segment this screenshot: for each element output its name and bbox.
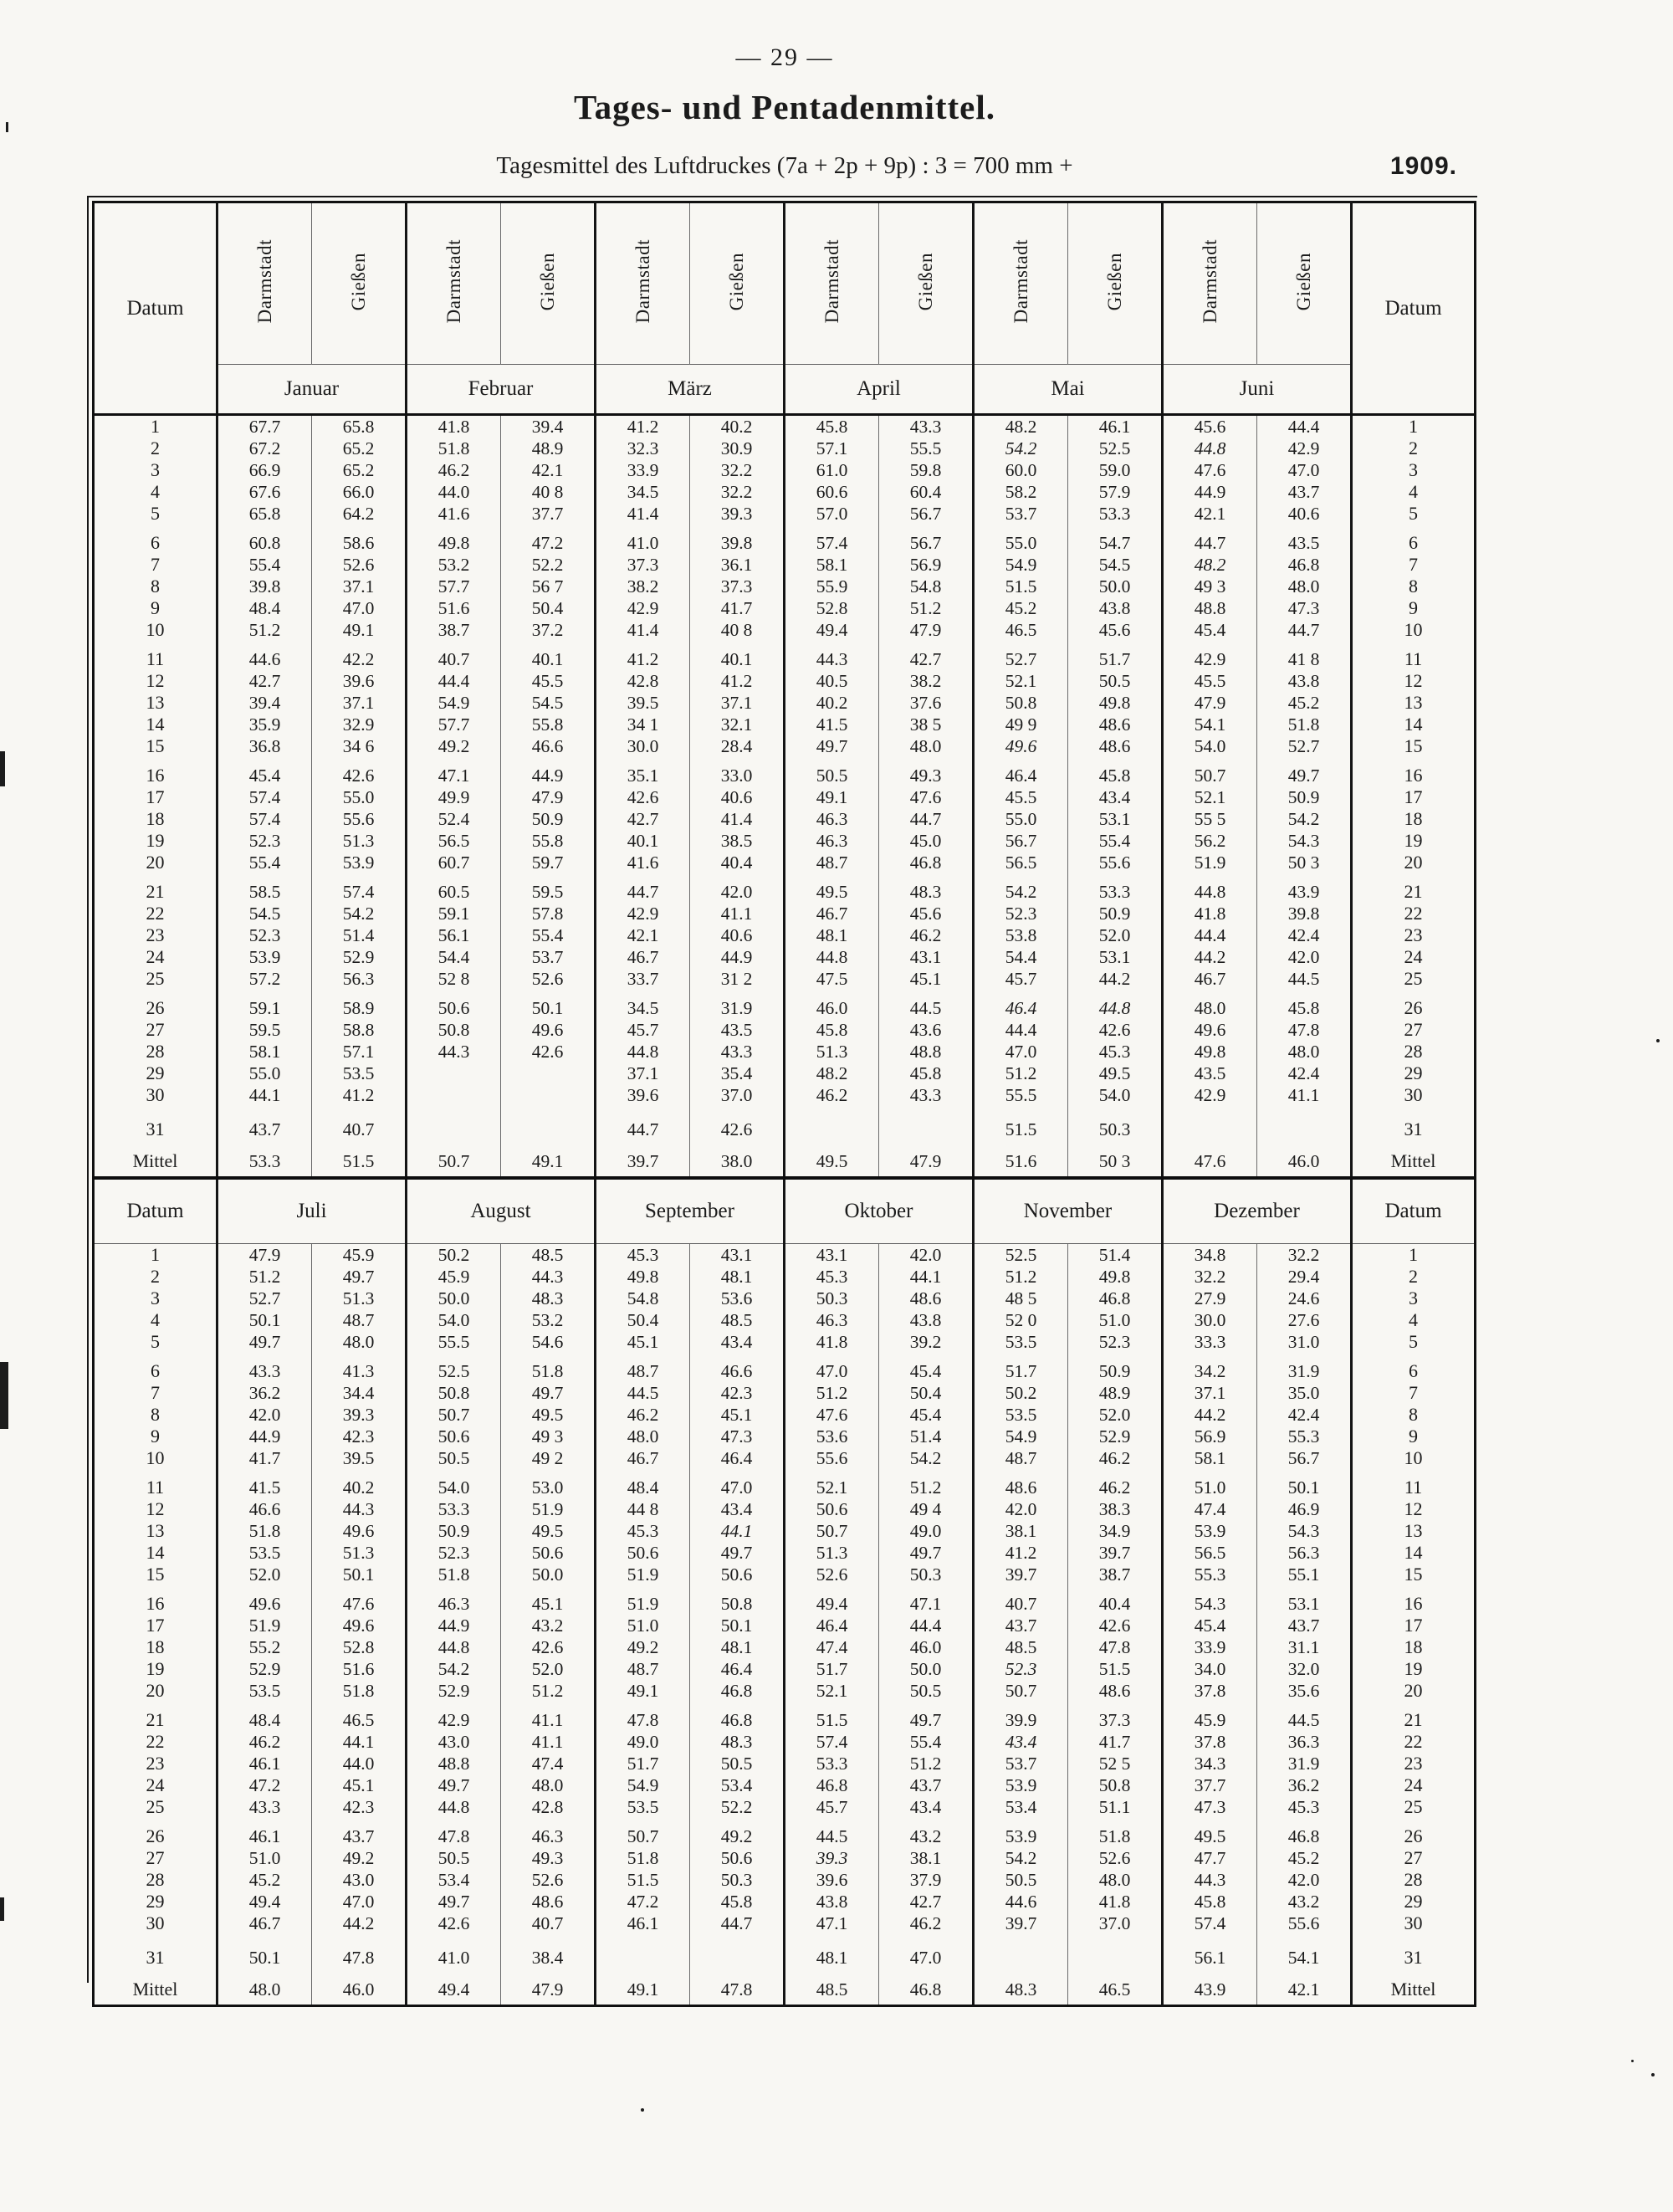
day-row: 1952.351.356.555.840.138.546.345.056.755… bbox=[94, 830, 1476, 852]
value-cell: 43.0 bbox=[312, 1869, 407, 1891]
value-cell: 53.7 bbox=[974, 1753, 1068, 1774]
value-cell: 53.6 bbox=[785, 1426, 879, 1447]
value-cell: 48.8 bbox=[1163, 597, 1257, 619]
value-cell: 39.5 bbox=[596, 692, 690, 714]
value-cell: 48.7 bbox=[974, 1447, 1068, 1469]
value-cell: 41.5 bbox=[785, 714, 879, 735]
value-cell: 49.5 bbox=[785, 1140, 879, 1178]
day-cell: 25 bbox=[1352, 1796, 1476, 1818]
value-cell: 44.8 bbox=[596, 1041, 690, 1062]
day-cell: 21 bbox=[1352, 1702, 1476, 1731]
value-cell: 42.0 bbox=[974, 1498, 1068, 1520]
value-cell: 47.6 bbox=[1163, 1140, 1257, 1178]
value-cell: 52.2 bbox=[501, 554, 596, 576]
month-header-dezember: Dezember bbox=[1163, 1178, 1352, 1244]
value-cell: 43.8 bbox=[879, 1309, 974, 1331]
value-cell: 48.4 bbox=[596, 1469, 690, 1498]
day-cell: 28 bbox=[1352, 1869, 1476, 1891]
value-cell: 54.6 bbox=[501, 1331, 596, 1353]
day-cell: 6 bbox=[94, 525, 217, 554]
value-cell: 37.8 bbox=[1163, 1731, 1257, 1753]
day-cell: 31 bbox=[94, 1934, 217, 1969]
month-header-juni: Juni bbox=[1163, 365, 1352, 415]
value-cell: 52.8 bbox=[785, 597, 879, 619]
value-cell: 40.7 bbox=[407, 641, 501, 670]
value-cell: 46.8 bbox=[879, 852, 974, 873]
value-cell: 43.1 bbox=[879, 946, 974, 968]
value-cell: 44.3 bbox=[407, 1041, 501, 1062]
value-cell: 44.9 bbox=[217, 1426, 312, 1447]
day-cell: Mittel bbox=[94, 1969, 217, 2006]
station-header-giessen: Gießen bbox=[312, 202, 407, 365]
day-cell: 20 bbox=[1352, 1680, 1476, 1702]
value-cell: 52.9 bbox=[1068, 1426, 1163, 1447]
value-cell: 32.0 bbox=[1257, 1658, 1352, 1680]
value-cell: 48.6 bbox=[879, 1288, 974, 1309]
value-cell: 39.2 bbox=[879, 1331, 974, 1353]
value-cell: 53.1 bbox=[1068, 946, 1163, 968]
value-cell: 51.2 bbox=[879, 597, 974, 619]
value-cell: 33.3 bbox=[1163, 1331, 1257, 1353]
day-row: 2453.952.954.453.746.744.944.843.154.453… bbox=[94, 946, 1476, 968]
value-cell: 59.7 bbox=[501, 852, 596, 873]
value-cell: 44.2 bbox=[1163, 1404, 1257, 1426]
value-cell: 40.2 bbox=[690, 415, 785, 438]
day-row: 1649.647.646.345.151.950.849.447.140.740… bbox=[94, 1585, 1476, 1615]
day-row: 2447.245.149.748.054.953.446.843.753.950… bbox=[94, 1774, 1476, 1796]
day-row: 755.452.653.252.237.336.158.156.954.954.… bbox=[94, 554, 1476, 576]
day-row: 2858.157.144.342.644.843.351.348.847.045… bbox=[94, 1041, 1476, 1062]
value-cell: 32.9 bbox=[312, 714, 407, 735]
value-cell: 42.1 bbox=[501, 459, 596, 481]
value-cell: 59.8 bbox=[879, 459, 974, 481]
second-half-year-body: 147.945.950.248.545.343.143.142.052.551.… bbox=[94, 1244, 1476, 2006]
value-cell: 49.2 bbox=[596, 1636, 690, 1658]
value-cell: 32.3 bbox=[596, 438, 690, 459]
value-cell: 45.3 bbox=[1068, 1041, 1163, 1062]
value-cell: 47.7 bbox=[1163, 1847, 1257, 1869]
value-cell: 51.8 bbox=[217, 1520, 312, 1542]
value-cell: 46.7 bbox=[217, 1912, 312, 1934]
value-cell: 48.1 bbox=[690, 1266, 785, 1288]
day-cell: 15 bbox=[94, 735, 217, 757]
value-cell: 48.7 bbox=[785, 852, 879, 873]
value-cell bbox=[1163, 1106, 1257, 1140]
value-cell: 46.8 bbox=[1068, 1288, 1163, 1309]
value-cell: 49.7 bbox=[407, 1774, 501, 1796]
day-row: 1751.949.644.943.251.050.146.444.443.742… bbox=[94, 1615, 1476, 1636]
value-cell: 42.8 bbox=[596, 670, 690, 692]
value-cell: 36.2 bbox=[217, 1382, 312, 1404]
mid-header: Datum Juli August September Oktober Nove… bbox=[94, 1178, 1476, 1244]
value-cell: 39.7 bbox=[596, 1140, 690, 1178]
value-cell: 57.7 bbox=[407, 576, 501, 597]
value-cell: 51.8 bbox=[407, 1564, 501, 1585]
value-cell: 48.9 bbox=[501, 438, 596, 459]
value-cell: 47.5 bbox=[785, 968, 879, 990]
value-cell: 51.2 bbox=[217, 619, 312, 641]
value-cell: 55.8 bbox=[501, 830, 596, 852]
value-cell: 52.3 bbox=[974, 903, 1068, 924]
value-cell: 49.7 bbox=[690, 1542, 785, 1564]
value-cell: 55.4 bbox=[1068, 830, 1163, 852]
day-cell: 14 bbox=[94, 714, 217, 735]
value-cell: 52.1 bbox=[785, 1469, 879, 1498]
value-cell: 46.7 bbox=[1163, 968, 1257, 990]
day-cell: Mittel bbox=[94, 1140, 217, 1178]
value-cell: 45.7 bbox=[596, 1019, 690, 1041]
station-header-giessen: Gießen bbox=[1068, 202, 1163, 365]
day-cell: 3 bbox=[1352, 459, 1476, 481]
value-cell: 47.4 bbox=[501, 1753, 596, 1774]
value-cell: 41.8 bbox=[1068, 1891, 1163, 1912]
value-cell: 50.6 bbox=[785, 1498, 879, 1520]
day-cell: 17 bbox=[94, 1615, 217, 1636]
value-cell: 52.9 bbox=[217, 1658, 312, 1680]
value-cell: 35.6 bbox=[1257, 1680, 1352, 1702]
day-row: 1855.252.844.842.649.248.147.446.048.547… bbox=[94, 1636, 1476, 1658]
value-cell: 41.7 bbox=[217, 1447, 312, 1469]
day-cell: 14 bbox=[1352, 714, 1476, 735]
month-header-januar: Januar bbox=[217, 365, 407, 415]
value-cell: 44.2 bbox=[1068, 968, 1163, 990]
value-cell: 44.6 bbox=[217, 641, 312, 670]
value-cell: 50.8 bbox=[974, 692, 1068, 714]
value-cell: 66.0 bbox=[312, 481, 407, 503]
first-half-year-body: 167.765.841.839.441.240.245.843.348.246.… bbox=[94, 415, 1476, 1179]
value-cell: 44.7 bbox=[879, 808, 974, 830]
value-cell: 50.7 bbox=[974, 1680, 1068, 1702]
value-cell: 54.0 bbox=[1068, 1084, 1163, 1106]
value-cell: 48.5 bbox=[974, 1636, 1068, 1658]
value-cell: 50.0 bbox=[879, 1658, 974, 1680]
value-cell: 41.8 bbox=[407, 415, 501, 438]
value-cell: 44 8 bbox=[596, 1498, 690, 1520]
value-cell: 51.8 bbox=[501, 1353, 596, 1382]
value-cell: 51.9 bbox=[217, 1615, 312, 1636]
day-cell: 21 bbox=[94, 1702, 217, 1731]
value-cell: 40 8 bbox=[501, 481, 596, 503]
value-cell: 47.3 bbox=[1257, 597, 1352, 619]
day-row: 2955.053.537.135.448.245.851.249.543.542… bbox=[94, 1062, 1476, 1084]
value-cell: 42.4 bbox=[1257, 1404, 1352, 1426]
value-cell: 55.6 bbox=[1257, 1912, 1352, 1934]
value-cell: 50.7 bbox=[407, 1140, 501, 1178]
value-cell: 42.3 bbox=[312, 1426, 407, 1447]
value-cell: 48.5 bbox=[501, 1244, 596, 1267]
day-cell: 9 bbox=[94, 1426, 217, 1447]
station-header-darmstadt: Darmstadt bbox=[1163, 202, 1257, 365]
value-cell: 54.9 bbox=[407, 692, 501, 714]
value-cell: 46.2 bbox=[879, 924, 974, 946]
value-cell: 49.5 bbox=[785, 873, 879, 903]
value-cell: 56.9 bbox=[879, 554, 974, 576]
day-row: 3150.147.841.038.448.147.056.154.131 bbox=[94, 1934, 1476, 1969]
month-header-april: April bbox=[785, 365, 974, 415]
value-cell: 64.2 bbox=[312, 503, 407, 525]
value-cell: 43.5 bbox=[1257, 525, 1352, 554]
value-cell: 50.9 bbox=[407, 1520, 501, 1542]
value-cell: 41.5 bbox=[217, 1469, 312, 1498]
value-cell: 40.4 bbox=[1068, 1585, 1163, 1615]
day-cell: 16 bbox=[1352, 1585, 1476, 1615]
value-cell: 34.0 bbox=[1163, 1658, 1257, 1680]
day-row: 2751.049.250.549.351.850.639.338.154.252… bbox=[94, 1847, 1476, 1869]
value-cell: 44.1 bbox=[879, 1266, 974, 1288]
value-cell: 55.4 bbox=[217, 554, 312, 576]
day-cell: 6 bbox=[1352, 525, 1476, 554]
value-cell: 59.1 bbox=[217, 990, 312, 1019]
day-cell: 3 bbox=[1352, 1288, 1476, 1309]
value-cell: 52.1 bbox=[1163, 786, 1257, 808]
value-cell: 49.3 bbox=[501, 1847, 596, 1869]
day-cell: 27 bbox=[1352, 1847, 1476, 1869]
value-cell: 52.5 bbox=[1068, 438, 1163, 459]
value-cell: 44.9 bbox=[501, 757, 596, 786]
value-cell: 50.9 bbox=[1068, 903, 1163, 924]
value-cell: 50.5 bbox=[1068, 670, 1163, 692]
value-cell: 48.3 bbox=[501, 1288, 596, 1309]
value-cell: 49.7 bbox=[1257, 757, 1352, 786]
outer-rule-left bbox=[87, 196, 89, 1983]
day-cell: 2 bbox=[94, 438, 217, 459]
value-cell: 52.3 bbox=[217, 924, 312, 946]
value-cell: 37.3 bbox=[1068, 1702, 1163, 1731]
day-cell: 7 bbox=[94, 1382, 217, 1404]
value-cell: 50.1 bbox=[690, 1615, 785, 1636]
day-cell: 30 bbox=[1352, 1084, 1476, 1106]
value-cell: 45.8 bbox=[879, 1062, 974, 1084]
value-cell: 53.4 bbox=[407, 1869, 501, 1891]
value-cell: 47.8 bbox=[407, 1818, 501, 1847]
value-cell: 34.8 bbox=[1163, 1244, 1257, 1267]
day-row: 2148.446.542.941.147.846.851.549.739.937… bbox=[94, 1702, 1476, 1731]
value-cell: 38.0 bbox=[690, 1140, 785, 1178]
value-cell: 51.7 bbox=[1068, 641, 1163, 670]
value-cell: 47.8 bbox=[312, 1934, 407, 1969]
value-cell: 53.5 bbox=[217, 1542, 312, 1564]
day-cell: 13 bbox=[1352, 1520, 1476, 1542]
day-cell: 26 bbox=[1352, 1818, 1476, 1847]
day-cell: 11 bbox=[1352, 1469, 1476, 1498]
value-cell: 51.9 bbox=[501, 1498, 596, 1520]
value-cell: 42.6 bbox=[1068, 1019, 1163, 1041]
value-cell: 54.0 bbox=[407, 1309, 501, 1331]
value-cell: 52.0 bbox=[1068, 924, 1163, 946]
value-cell: 48.2 bbox=[785, 1062, 879, 1084]
value-cell: 51.3 bbox=[312, 1542, 407, 1564]
value-cell: 40.2 bbox=[785, 692, 879, 714]
day-cell: 31 bbox=[1352, 1106, 1476, 1140]
value-cell: 40.1 bbox=[690, 641, 785, 670]
day-cell: 8 bbox=[94, 1404, 217, 1426]
value-cell: 39.4 bbox=[501, 415, 596, 438]
value-cell: 56.7 bbox=[1257, 1447, 1352, 1469]
day-cell: 18 bbox=[94, 1636, 217, 1658]
value-cell: 34.5 bbox=[596, 990, 690, 1019]
value-cell: 48 5 bbox=[974, 1288, 1068, 1309]
value-cell: 51.1 bbox=[1068, 1796, 1163, 1818]
value-cell: 43.7 bbox=[312, 1818, 407, 1847]
month-header-mai: Mai bbox=[974, 365, 1163, 415]
value-cell: 34.5 bbox=[596, 481, 690, 503]
value-cell: 42.6 bbox=[501, 1636, 596, 1658]
value-cell: 53.9 bbox=[217, 946, 312, 968]
value-cell bbox=[1068, 1934, 1163, 1969]
value-cell: 56.3 bbox=[1257, 1542, 1352, 1564]
value-cell: 41.8 bbox=[785, 1331, 879, 1353]
month-row-top: Januar Februar März April Mai Juni bbox=[94, 365, 1476, 415]
value-cell: 37.3 bbox=[596, 554, 690, 576]
value-cell: 65.2 bbox=[312, 438, 407, 459]
value-cell: 39.6 bbox=[312, 670, 407, 692]
value-cell: 45.5 bbox=[1163, 670, 1257, 692]
day-row: 2158.557.460.559.544.742.049.548.354.253… bbox=[94, 873, 1476, 903]
value-cell: 43.4 bbox=[974, 1731, 1068, 1753]
day-cell: 24 bbox=[1352, 1774, 1476, 1796]
station-header-darmstadt: Darmstadt bbox=[217, 202, 312, 365]
value-cell: 57.4 bbox=[312, 873, 407, 903]
value-cell: 49.8 bbox=[596, 1266, 690, 1288]
day-cell: 22 bbox=[1352, 1731, 1476, 1753]
value-cell: 46.8 bbox=[785, 1774, 879, 1796]
value-cell: 31 2 bbox=[690, 968, 785, 990]
value-cell: 54.8 bbox=[596, 1288, 690, 1309]
day-cell: 16 bbox=[1352, 757, 1476, 786]
value-cell: 42.9 bbox=[596, 597, 690, 619]
value-cell: 51.5 bbox=[312, 1140, 407, 1178]
value-cell: 43.6 bbox=[879, 1019, 974, 1041]
value-cell: 42.6 bbox=[312, 757, 407, 786]
value-cell: 32.2 bbox=[1163, 1266, 1257, 1288]
value-cell: 24.6 bbox=[1257, 1288, 1352, 1309]
value-cell: 45.9 bbox=[407, 1266, 501, 1288]
day-row: 1041.739.550.549 246.746.455.654.248.746… bbox=[94, 1447, 1476, 1469]
value-cell: 47.2 bbox=[596, 1891, 690, 1912]
day-cell: 5 bbox=[1352, 1331, 1476, 1353]
value-cell: 53.9 bbox=[312, 852, 407, 873]
day-row: 842.039.350.749.546.245.147.645.453.552.… bbox=[94, 1404, 1476, 1426]
value-cell: 55.5 bbox=[407, 1331, 501, 1353]
value-cell: 38 5 bbox=[879, 714, 974, 735]
value-cell: 52.5 bbox=[974, 1244, 1068, 1267]
value-cell: 57.8 bbox=[501, 903, 596, 924]
value-cell: 44.8 bbox=[1163, 873, 1257, 903]
value-cell: 45.8 bbox=[785, 415, 879, 438]
value-cell: 41.3 bbox=[312, 1353, 407, 1382]
value-cell: 54.2 bbox=[974, 438, 1068, 459]
value-cell: 54.5 bbox=[501, 692, 596, 714]
value-cell: 42.1 bbox=[596, 924, 690, 946]
value-cell: 51.3 bbox=[312, 1288, 407, 1309]
value-cell: 43.5 bbox=[1163, 1062, 1257, 1084]
day-cell: 26 bbox=[94, 1818, 217, 1847]
value-cell: 46.6 bbox=[217, 1498, 312, 1520]
value-cell: 50.5 bbox=[879, 1680, 974, 1702]
value-cell: 50.5 bbox=[407, 1447, 501, 1469]
day-cell: 27 bbox=[1352, 1019, 1476, 1041]
value-cell bbox=[1257, 1106, 1352, 1140]
value-cell: 44.5 bbox=[596, 1382, 690, 1404]
value-cell: 48.7 bbox=[596, 1353, 690, 1382]
day-cell: 8 bbox=[94, 576, 217, 597]
value-cell: 50.5 bbox=[690, 1753, 785, 1774]
day-cell: 2 bbox=[94, 1266, 217, 1288]
top-header: Datum Darmstadt Gießen Darmstadt Gießen … bbox=[94, 202, 1476, 415]
value-cell: 47.0 bbox=[785, 1353, 879, 1382]
value-cell: 40 8 bbox=[690, 619, 785, 641]
value-cell: 43.3 bbox=[879, 415, 974, 438]
value-cell: 52.6 bbox=[1068, 1847, 1163, 1869]
value-cell: 39.3 bbox=[312, 1404, 407, 1426]
value-cell: 49.7 bbox=[879, 1542, 974, 1564]
day-cell: 20 bbox=[94, 852, 217, 873]
day-cell: 1 bbox=[1352, 415, 1476, 438]
value-cell: 52.8 bbox=[312, 1636, 407, 1658]
value-cell: 54.2 bbox=[407, 1658, 501, 1680]
day-row: 267.265.251.848.932.330.957.155.554.252.… bbox=[94, 438, 1476, 459]
value-cell: 51.7 bbox=[596, 1753, 690, 1774]
value-cell: 41.2 bbox=[596, 415, 690, 438]
value-cell: 29.4 bbox=[1257, 1266, 1352, 1288]
value-cell: 45.8 bbox=[785, 1019, 879, 1041]
value-cell: 66.9 bbox=[217, 459, 312, 481]
value-cell: 67.6 bbox=[217, 481, 312, 503]
value-cell: 52.4 bbox=[407, 808, 501, 830]
value-cell: 50.6 bbox=[501, 1542, 596, 1564]
value-cell: 50.3 bbox=[785, 1288, 879, 1309]
value-cell: 55.1 bbox=[1257, 1564, 1352, 1585]
value-cell: 42.9 bbox=[407, 1702, 501, 1731]
value-cell: 48.0 bbox=[879, 735, 974, 757]
value-cell: 56.3 bbox=[312, 968, 407, 990]
value-cell: 56.5 bbox=[407, 830, 501, 852]
value-cell: 48.1 bbox=[785, 1934, 879, 1969]
value-cell: 61.0 bbox=[785, 459, 879, 481]
value-cell: 51.0 bbox=[1068, 1309, 1163, 1331]
day-row: 2346.144.048.847.451.750.553.351.253.752… bbox=[94, 1753, 1476, 1774]
value-cell: 47.8 bbox=[596, 1702, 690, 1731]
value-cell: 44.3 bbox=[1163, 1869, 1257, 1891]
value-cell: 51.9 bbox=[596, 1564, 690, 1585]
value-cell: 40.6 bbox=[1257, 503, 1352, 525]
value-cell: 51.5 bbox=[1068, 1658, 1163, 1680]
day-cell: 3 bbox=[94, 459, 217, 481]
value-cell: 50.3 bbox=[879, 1564, 974, 1585]
day-cell: 8 bbox=[1352, 1404, 1476, 1426]
value-cell: 52 8 bbox=[407, 968, 501, 990]
value-cell: 56.7 bbox=[879, 525, 974, 554]
value-cell: 52.7 bbox=[1257, 735, 1352, 757]
value-cell: 51.7 bbox=[974, 1353, 1068, 1382]
value-cell: 45.3 bbox=[1257, 1796, 1352, 1818]
value-cell: 51.7 bbox=[785, 1658, 879, 1680]
value-cell: 49.7 bbox=[879, 1702, 974, 1731]
value-cell: 46.8 bbox=[1257, 1818, 1352, 1847]
value-cell: 53.1 bbox=[1068, 808, 1163, 830]
value-cell: 49.5 bbox=[1163, 1818, 1257, 1847]
value-cell: 50 3 bbox=[1257, 852, 1352, 873]
value-cell: 43.7 bbox=[974, 1615, 1068, 1636]
value-cell: 48.1 bbox=[690, 1636, 785, 1658]
value-cell: 48.6 bbox=[1068, 714, 1163, 735]
value-cell: 52.3 bbox=[217, 830, 312, 852]
day-row: 3044.141.239.637.046.243.355.554.042.941… bbox=[94, 1084, 1476, 1106]
value-cell: 53.1 bbox=[1257, 1585, 1352, 1615]
value-cell: 54.0 bbox=[1163, 735, 1257, 757]
month-header-september: September bbox=[596, 1178, 785, 1244]
scan-artifact bbox=[6, 122, 8, 132]
